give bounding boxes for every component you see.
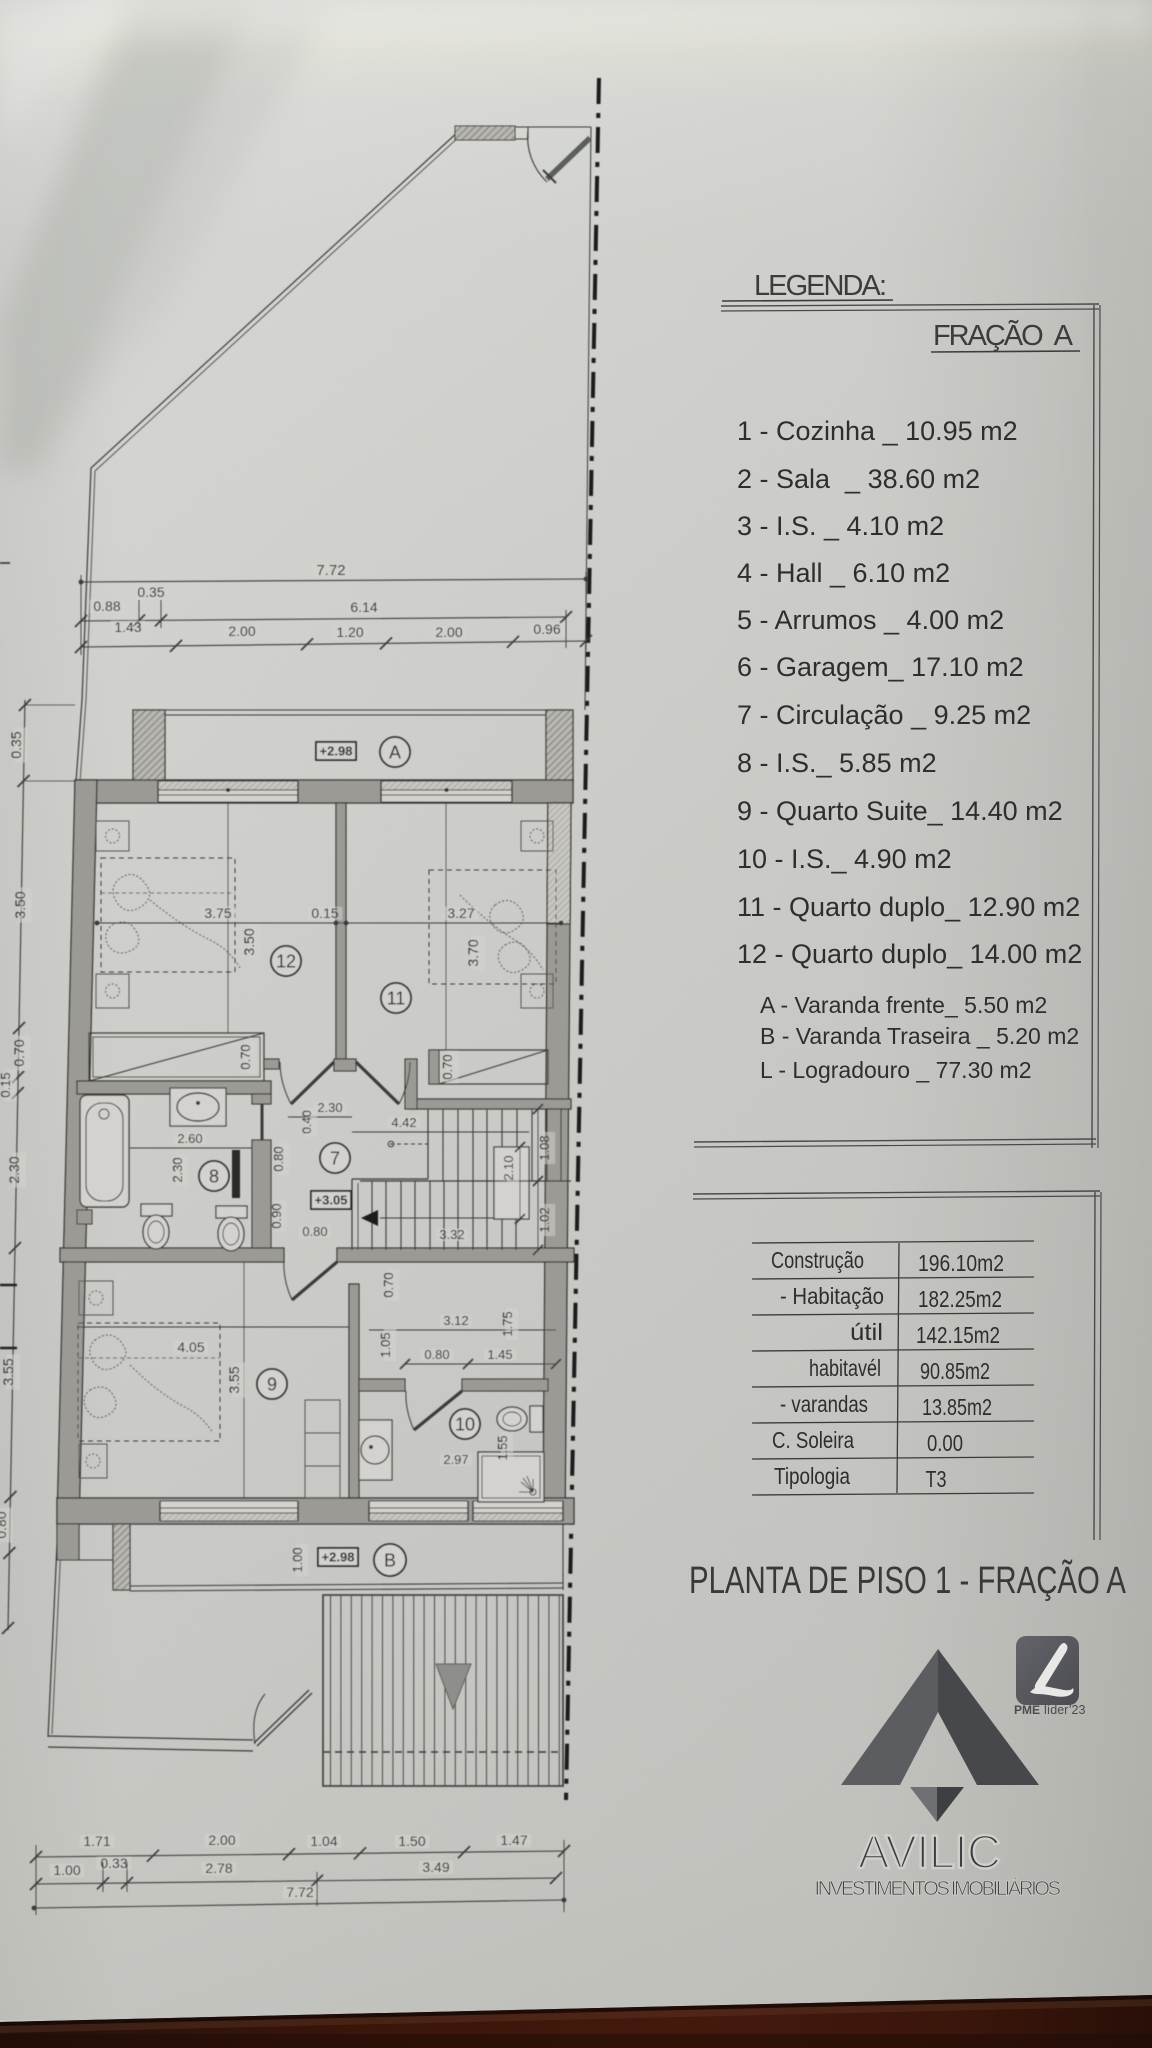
svg-text:2.97: 2.97: [443, 1452, 468, 1467]
svg-text:90.85m2: 90.85m2: [920, 1358, 990, 1384]
svg-text:Construção: Construção: [771, 1247, 864, 1273]
svg-text:1.04: 1.04: [310, 1833, 337, 1849]
svg-text:1.08: 1.08: [537, 1135, 552, 1160]
svg-text:6.14: 6.14: [350, 599, 377, 615]
svg-text:6 - Garagem_ 17.10 m2: 6 - Garagem_ 17.10 m2: [737, 652, 1024, 682]
svg-text:líder’23: líder’23: [1044, 1703, 1086, 1717]
svg-text:3.27: 3.27: [447, 905, 474, 921]
svg-text:FRAÇÃO A: FRAÇÃO A: [933, 318, 1076, 352]
svg-text:182.25m2: 182.25m2: [918, 1286, 1002, 1312]
svg-text:habitavél: habitavél: [809, 1355, 881, 1381]
svg-text:A: A: [389, 742, 401, 762]
svg-text:3.55: 3.55: [226, 1366, 242, 1393]
svg-text:2.10: 2.10: [501, 1155, 516, 1180]
svg-text:0.15: 0.15: [0, 1072, 13, 1097]
svg-text:9 - Quarto Suite_ 14.40 m2: 9 - Quarto Suite_ 14.40 m2: [737, 796, 1063, 826]
svg-text:0.70: 0.70: [440, 1054, 455, 1079]
svg-text:2.30: 2.30: [317, 1100, 342, 1115]
svg-text:+3.05: +3.05: [315, 1193, 348, 1208]
svg-text:2.78: 2.78: [205, 1860, 232, 1876]
svg-text:L - Logradouro _ 77.30 m2: L - Logradouro _ 77.30 m2: [760, 1057, 1032, 1083]
svg-text:2 - Sala _ 38.60 m2: 2 - Sala _ 38.60 m2: [737, 464, 980, 494]
svg-text:7 - Circulação _ 9.25 m2: 7 - Circulação _ 9.25 m2: [737, 700, 1031, 730]
svg-text:T3: T3: [926, 1466, 947, 1492]
svg-text:0.70: 0.70: [11, 1039, 27, 1066]
svg-text:2.30: 2.30: [6, 1156, 22, 1183]
svg-text:INVESTIMENTOS IMOBILIÁRIOS: INVESTIMENTOS IMOBILIÁRIOS: [815, 1877, 1062, 1900]
svg-text:1.00: 1.00: [290, 1547, 305, 1572]
svg-text:0.88: 0.88: [93, 598, 120, 614]
svg-text:1.20: 1.20: [336, 624, 363, 640]
svg-text:0.33: 0.33: [100, 1855, 127, 1871]
svg-text:4.42: 4.42: [391, 1115, 416, 1130]
svg-text:+2.98: +2.98: [320, 744, 353, 759]
svg-text:1.02: 1.02: [537, 1207, 552, 1232]
svg-text:3.12: 3.12: [443, 1313, 468, 1328]
svg-text:1.43: 1.43: [114, 619, 141, 635]
svg-text:útil: útil: [850, 1319, 883, 1345]
svg-text:2.30: 2.30: [170, 1157, 185, 1182]
svg-text:3.70: 3.70: [465, 939, 481, 966]
svg-text:0.80: 0.80: [302, 1224, 327, 1239]
svg-text:0.35: 0.35: [137, 584, 164, 600]
svg-text:Tipologia: Tipologia: [774, 1463, 850, 1489]
svg-text:12 - Quarto duplo_ 14.00 m2: 12 - Quarto duplo_ 14.00 m2: [737, 939, 1082, 969]
svg-text:- varandas: - varandas: [780, 1391, 868, 1417]
svg-text:+2.98: +2.98: [322, 1550, 355, 1565]
svg-text:PME: PME: [1014, 1703, 1040, 1717]
svg-text:A - Varanda frente_ 5.50 m2: A - Varanda frente_ 5.50 m2: [760, 992, 1047, 1018]
svg-text:11 - Quarto duplo_ 12.90 m2: 11 - Quarto duplo_ 12.90 m2: [737, 892, 1080, 922]
svg-text:0.96: 0.96: [533, 621, 560, 637]
svg-text:0.80: 0.80: [0, 1511, 9, 1538]
svg-text:1.50: 1.50: [398, 1833, 425, 1849]
svg-text:1.55: 1.55: [495, 1435, 510, 1460]
svg-text:1.71: 1.71: [83, 1833, 110, 1849]
svg-text:LEGENDA:: LEGENDA:: [754, 270, 890, 302]
svg-text:3.75: 3.75: [204, 905, 231, 921]
svg-text:0.90: 0.90: [269, 1203, 284, 1228]
svg-text:3.50: 3.50: [241, 928, 257, 955]
svg-text:9: 9: [267, 1374, 277, 1394]
svg-text:8 - I.S._ 5.85 m2: 8 - I.S._ 5.85 m2: [737, 748, 937, 778]
svg-text:3.50: 3.50: [12, 891, 28, 918]
svg-text:142.15m2: 142.15m2: [916, 1322, 1000, 1348]
svg-text:2.00: 2.00: [208, 1832, 235, 1848]
svg-text:1 - Cozinha _ 10.95 m2: 1 - Cozinha _ 10.95 m2: [737, 416, 1018, 446]
svg-text:PLANTA DE PISO 1 - FRAÇÃO A: PLANTA DE PISO 1 - FRAÇÃO A: [689, 1559, 1127, 1602]
svg-text:0.80: 0.80: [424, 1347, 449, 1362]
svg-text:10: 10: [455, 1414, 475, 1434]
svg-text:11: 11: [387, 988, 406, 1008]
svg-text:- Habitação: - Habitação: [780, 1283, 884, 1309]
svg-text:1.00: 1.00: [53, 1862, 80, 1878]
svg-text:1.47: 1.47: [500, 1832, 527, 1848]
svg-text:0.40: 0.40: [300, 1110, 314, 1134]
svg-text:2.00: 2.00: [228, 623, 255, 639]
svg-text:B: B: [384, 1550, 396, 1570]
svg-text:3.49: 3.49: [422, 1859, 449, 1875]
svg-text:0.35: 0.35: [8, 731, 24, 758]
svg-text:3.55: 3.55: [0, 1358, 16, 1385]
svg-text:7.72: 7.72: [316, 562, 345, 579]
svg-text:13.85m2: 13.85m2: [922, 1394, 992, 1420]
svg-text:8: 8: [209, 1166, 219, 1186]
svg-text:3.32: 3.32: [439, 1227, 464, 1242]
svg-text:AVILIC: AVILIC: [858, 1825, 1008, 1878]
svg-text:0.00: 0.00: [927, 1430, 963, 1456]
svg-text:7.72: 7.72: [286, 1884, 313, 1900]
svg-text:C. Soleira: C. Soleira: [772, 1427, 854, 1453]
svg-text:10 - I.S._ 4.90 m2: 10 - I.S._ 4.90 m2: [737, 844, 952, 874]
svg-text:0.70: 0.70: [238, 1044, 253, 1069]
svg-text:1.05: 1.05: [378, 1332, 393, 1357]
svg-text:0.80: 0.80: [271, 1146, 286, 1171]
svg-text:4 - Hall _ 6.10 m2: 4 - Hall _ 6.10 m2: [737, 558, 950, 588]
svg-text:0.15: 0.15: [311, 905, 338, 921]
svg-text:1.75: 1.75: [500, 1311, 515, 1336]
svg-text:4.05: 4.05: [177, 1339, 204, 1355]
svg-text:3 - I.S. _ 4.10 m2: 3 - I.S. _ 4.10 m2: [737, 511, 944, 541]
svg-text:2.00: 2.00: [435, 624, 462, 640]
svg-text:B - Varanda Traseira _ 5.20 m2: B - Varanda Traseira _ 5.20 m2: [760, 1023, 1079, 1049]
svg-text:12: 12: [276, 951, 296, 971]
svg-text:2.60: 2.60: [177, 1131, 202, 1146]
svg-text:5 - Arrumos _ 4.00 m2: 5 - Arrumos _ 4.00 m2: [737, 605, 1004, 635]
svg-text:7: 7: [330, 1148, 340, 1168]
svg-text:1.45: 1.45: [487, 1347, 512, 1362]
svg-text:196.10m2: 196.10m2: [918, 1250, 1004, 1276]
svg-text:0.70: 0.70: [381, 1272, 396, 1297]
